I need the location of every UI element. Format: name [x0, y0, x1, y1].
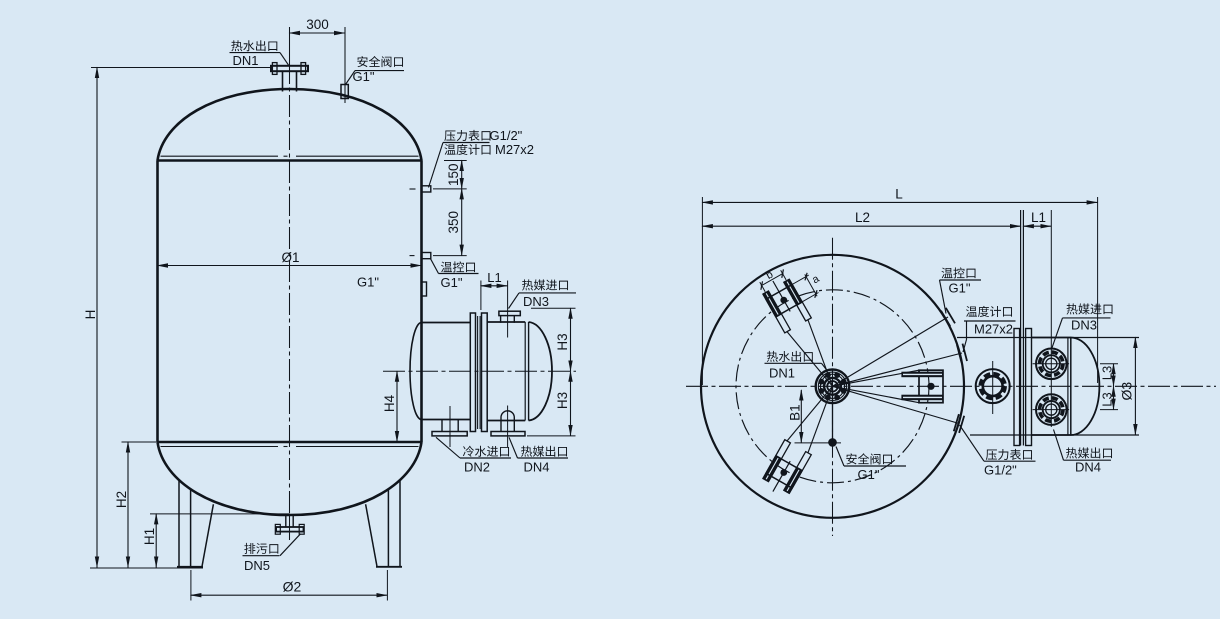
svg-text:H1: H1 — [142, 528, 157, 545]
svg-text:DN3: DN3 — [523, 294, 549, 309]
svg-text:G1": G1" — [353, 69, 375, 84]
svg-text:L2: L2 — [855, 210, 870, 225]
svg-text:G1/2": G1/2" — [490, 128, 523, 143]
svg-text:G1": G1" — [441, 275, 463, 290]
svg-text:L: L — [895, 187, 903, 202]
svg-text:DN1: DN1 — [233, 53, 259, 68]
svg-text:150: 150 — [446, 163, 461, 186]
svg-text:L3: L3 — [1100, 392, 1115, 406]
svg-text:Ø2: Ø2 — [283, 579, 302, 595]
svg-text:350: 350 — [446, 211, 461, 234]
svg-text:Ø1: Ø1 — [281, 250, 299, 265]
svg-text:300: 300 — [306, 17, 329, 32]
svg-text:DN2: DN2 — [464, 460, 490, 475]
svg-text:B1: B1 — [788, 404, 803, 421]
svg-text:L1: L1 — [487, 270, 501, 285]
svg-text:G1/2": G1/2" — [984, 463, 1017, 478]
svg-text:Ø3: Ø3 — [1119, 382, 1135, 401]
svg-text:G1": G1" — [357, 275, 379, 290]
svg-text:M27x2: M27x2 — [495, 142, 534, 157]
svg-text:H3: H3 — [555, 333, 570, 350]
svg-text:DN3: DN3 — [1071, 318, 1097, 333]
svg-text:H3: H3 — [555, 392, 570, 409]
svg-text:H: H — [83, 310, 98, 320]
svg-text:DN5: DN5 — [244, 558, 270, 573]
svg-text:G1": G1" — [949, 281, 971, 296]
svg-text:DN1: DN1 — [769, 366, 795, 381]
svg-text:DN4: DN4 — [524, 460, 550, 475]
svg-text:G1": G1" — [858, 467, 880, 482]
svg-text:H4: H4 — [382, 394, 397, 412]
svg-text:H2: H2 — [114, 491, 129, 508]
svg-text:M27x2: M27x2 — [974, 322, 1013, 337]
svg-text:DN4: DN4 — [1075, 460, 1101, 475]
svg-text:L3: L3 — [1100, 366, 1115, 380]
svg-text:L1: L1 — [1031, 210, 1046, 225]
